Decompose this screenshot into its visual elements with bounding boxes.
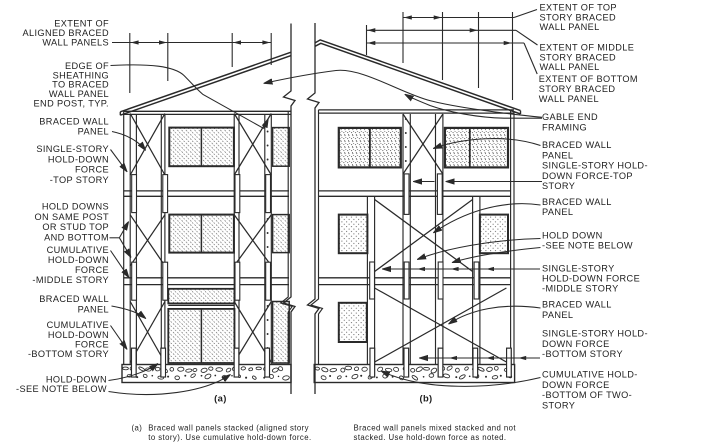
svg-text:FORCE: FORCE	[75, 265, 109, 275]
svg-text:-BOTTOM STORY: -BOTTOM STORY	[28, 349, 109, 359]
svg-text:-BOTTOM OF TWO-: -BOTTOM OF TWO-	[542, 390, 632, 400]
svg-text:HOLD-DOWN: HOLD-DOWN	[48, 330, 109, 340]
svg-text:FRAMING: FRAMING	[542, 122, 587, 132]
svg-text:SINGLE-STORY HOLD-: SINGLE-STORY HOLD-	[542, 161, 648, 171]
svg-text:EXTENT OF MIDDLE: EXTENT OF MIDDLE	[540, 43, 635, 53]
svg-text:FORCE: FORCE	[75, 165, 109, 175]
svg-text:(b): (b)	[419, 393, 432, 404]
svg-text:HOLD-DOWN: HOLD-DOWN	[46, 374, 107, 384]
svg-text:DOWN FORCE: DOWN FORCE	[542, 339, 610, 349]
svg-text:WALL PANELS: WALL PANELS	[42, 38, 109, 48]
svg-text:ALIGNED BRACED: ALIGNED BRACED	[23, 28, 110, 38]
svg-text:(a): (a)	[214, 393, 227, 404]
svg-text:PANEL: PANEL	[78, 304, 109, 314]
svg-text:(a): (a)	[132, 424, 143, 433]
svg-text:-MIDDLE STORY: -MIDDLE STORY	[542, 284, 619, 294]
svg-text:Braced wall panels mixed stack: Braced wall panels mixed stacked and not	[354, 424, 517, 433]
svg-text:ON SAME POST: ON SAME POST	[35, 212, 110, 222]
svg-text:EXTENT OF TOP: EXTENT OF TOP	[540, 3, 617, 13]
svg-text:-SEE NOTE BELOW: -SEE NOTE BELOW	[16, 384, 107, 394]
svg-text:STORY BRACED: STORY BRACED	[540, 12, 617, 22]
svg-text:HOLD-DOWN: HOLD-DOWN	[48, 154, 109, 164]
svg-text:DOWN FORCE: DOWN FORCE	[542, 380, 610, 390]
svg-text:WALL PANEL: WALL PANEL	[540, 22, 600, 32]
svg-text:STORY BRACED: STORY BRACED	[539, 84, 616, 94]
svg-text:DOWN FORCE-TOP: DOWN FORCE-TOP	[542, 171, 633, 181]
svg-text:BRACED WALL: BRACED WALL	[542, 140, 612, 150]
svg-text:-SEE NOTE BELOW: -SEE NOTE BELOW	[542, 241, 633, 251]
svg-text:SINGLE-STORY HOLD-: SINGLE-STORY HOLD-	[542, 328, 648, 338]
svg-text:END POST, TYP.: END POST, TYP.	[34, 98, 109, 108]
svg-text:CUMULATIVE HOLD-: CUMULATIVE HOLD-	[542, 369, 638, 379]
svg-text:BRACED WALL: BRACED WALL	[542, 300, 612, 310]
svg-text:-BOTTOM STORY: -BOTTOM STORY	[542, 349, 623, 359]
svg-text:-TOP STORY: -TOP STORY	[50, 175, 109, 185]
svg-text:PANEL: PANEL	[542, 207, 573, 217]
svg-text:-MIDDLE STORY: -MIDDLE STORY	[32, 275, 109, 285]
svg-text:to story). Use cumulative hold: to story). Use cumulative hold-down forc…	[148, 433, 311, 442]
svg-text:STORY: STORY	[542, 401, 575, 411]
svg-text:BRACED WALL: BRACED WALL	[39, 117, 109, 127]
svg-text:EXTENT OF: EXTENT OF	[54, 18, 109, 28]
svg-text:OR STUD TOP: OR STUD TOP	[42, 222, 109, 232]
svg-text:STORY: STORY	[542, 181, 575, 191]
svg-text:stacked. Use hold-down force a: stacked. Use hold-down force as noted.	[354, 433, 507, 442]
svg-text:WALL PANEL: WALL PANEL	[540, 62, 600, 72]
svg-text:STORY BRACED: STORY BRACED	[540, 52, 617, 62]
svg-text:Braced wall panels stacked (al: Braced wall panels stacked (aligned stor…	[148, 424, 309, 433]
svg-text:SINGLE-STORY: SINGLE-STORY	[542, 263, 615, 273]
svg-text:BRACED WALL: BRACED WALL	[542, 197, 612, 207]
svg-text:BRACED WALL: BRACED WALL	[39, 294, 109, 304]
svg-text:WALL PANEL: WALL PANEL	[539, 94, 599, 104]
svg-text:CUMULATIVE: CUMULATIVE	[47, 245, 109, 255]
svg-text:AND BOTTOM: AND BOTTOM	[44, 233, 109, 243]
svg-text:PANEL: PANEL	[542, 310, 573, 320]
svg-text:GABLE END: GABLE END	[542, 112, 598, 122]
svg-text:CUMULATIVE: CUMULATIVE	[47, 320, 109, 330]
svg-text:HOLD-DOWN: HOLD-DOWN	[48, 255, 109, 265]
svg-text:HOLD DOWNS: HOLD DOWNS	[42, 201, 109, 211]
svg-text:PANEL: PANEL	[78, 127, 109, 137]
svg-text:PANEL: PANEL	[542, 150, 573, 160]
svg-text:SINGLE-STORY: SINGLE-STORY	[36, 144, 109, 154]
svg-text:HOLD-DOWN FORCE: HOLD-DOWN FORCE	[542, 274, 640, 284]
svg-text:EXTENT OF BOTTOM: EXTENT OF BOTTOM	[539, 74, 638, 84]
svg-text:FORCE: FORCE	[75, 340, 109, 350]
svg-text:HOLD DOWN: HOLD DOWN	[542, 230, 603, 240]
